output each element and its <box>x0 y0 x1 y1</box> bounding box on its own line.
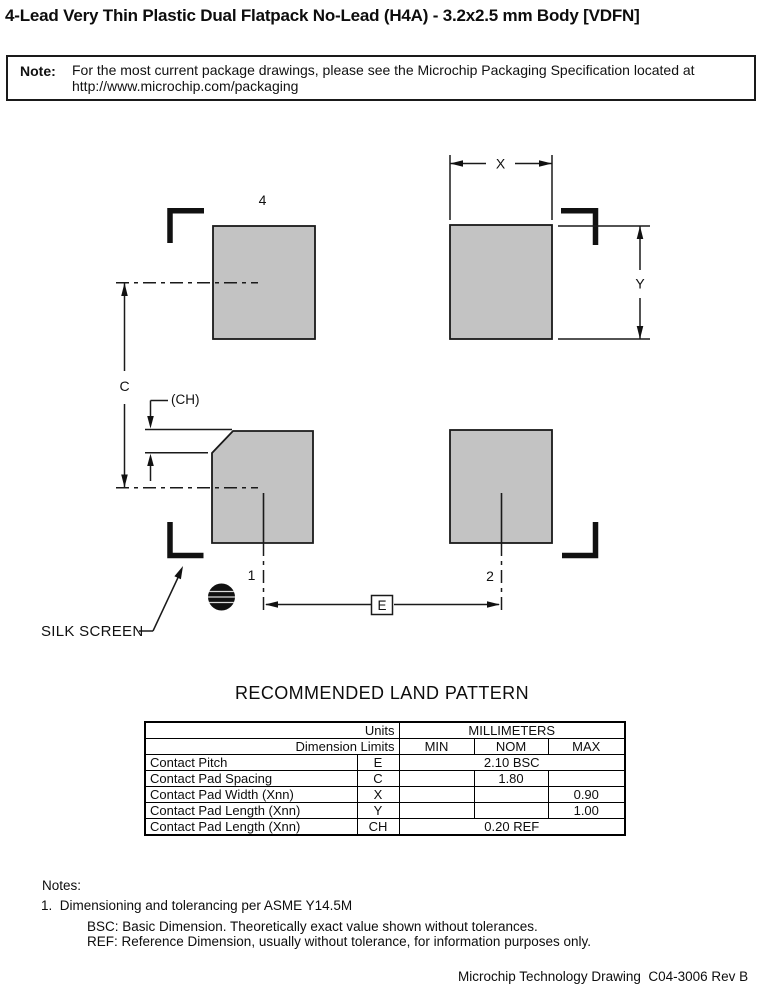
table-row: Contact Pitch E 2.10 BSC <box>145 755 625 771</box>
silk-leader-diag <box>153 577 179 632</box>
row-nom-cell: 1.80 <box>474 771 548 787</box>
note-sub-bsc: BSC: Basic Dimension. Theoretically exac… <box>87 919 538 934</box>
millimeters-cell: MILLIMETERS <box>399 722 625 739</box>
bracket-bottom-right-icon <box>562 522 596 556</box>
dim-y-arrow-bottom-icon <box>637 326 644 339</box>
row-nom-cell <box>474 787 548 803</box>
dim-y-arrow-top-icon <box>637 226 644 239</box>
dim-e-label: E <box>377 598 386 613</box>
bracket-top-right-icon <box>561 211 596 245</box>
dim-x-arrow-left-icon <box>450 160 463 167</box>
row-max-cell: 1.00 <box>548 803 625 819</box>
row-name-cell: Contact Pad Width (Xnn) <box>145 787 357 803</box>
page-title: 4-Lead Very Thin Plastic Dual Flatpack N… <box>5 6 757 26</box>
table-row: Contact Pad Spacing C 1.80 <box>145 771 625 787</box>
land-pattern-heading: RECOMMENDED LAND PATTERN <box>0 683 764 704</box>
table-row-dimension-limits: Dimension Limits MIN NOM MAX <box>145 739 625 755</box>
row-symbol-cell: E <box>357 755 399 771</box>
dim-x-label: X <box>496 156 506 172</box>
dimension-limits-cell: Dimension Limits <box>145 739 399 755</box>
max-header-cell: MAX <box>548 739 625 755</box>
dim-c-arrow-top-icon <box>121 283 128 296</box>
units-cell: Units <box>145 722 399 739</box>
row-min-cell <box>399 803 474 819</box>
silk-screen-callout <box>139 577 179 632</box>
dim-y-label: Y <box>635 276 645 292</box>
row-value-cell: 0.20 REF <box>399 819 625 836</box>
row-symbol-cell: CH <box>357 819 399 836</box>
row-name-cell: Contact Pad Length (Xnn) <box>145 803 357 819</box>
dim-ch-label: (CH) <box>171 392 200 407</box>
silk-screen-label: SILK SCREEN <box>41 623 144 640</box>
note-item-1: 1. Dimensioning and tolerancing per ASME… <box>41 898 352 913</box>
row-name-cell: Contact Pitch <box>145 755 357 771</box>
pad-3-top-right <box>450 225 552 339</box>
row-nom-cell <box>474 803 548 819</box>
table-row: Contact Pad Width (Xnn) X 0.90 <box>145 787 625 803</box>
note-text-line1: For the most current package drawings, p… <box>72 63 744 79</box>
footer-drawing-number: Microchip Technology Drawing C04-3006 Re… <box>458 969 748 984</box>
pin1-dot-icon <box>207 584 236 611</box>
row-min-cell <box>399 787 474 803</box>
document-page: 4-Lead Very Thin Plastic Dual Flatpack N… <box>0 0 764 988</box>
bracket-top-left-icon <box>170 211 204 243</box>
row-min-cell <box>399 771 474 787</box>
dim-ch-arrow-up-icon <box>147 454 154 466</box>
note-sub-ref: REF: Reference Dimension, usually withou… <box>87 934 591 949</box>
dim-ch-arrow-down-icon <box>147 416 154 429</box>
notes-heading: Notes: <box>42 878 81 893</box>
row-symbol-cell: Y <box>357 803 399 819</box>
table-row: Contact Pad Length (Xnn) CH 0.20 REF <box>145 819 625 836</box>
dimension-table: Units MILLIMETERS Dimension Limits MIN N… <box>144 721 626 836</box>
pad-2-number: 2 <box>486 568 494 584</box>
nom-header-cell: NOM <box>474 739 548 755</box>
row-max-cell <box>548 771 625 787</box>
dim-c-label: C <box>119 378 129 394</box>
row-symbol-cell: C <box>357 771 399 787</box>
note-label: Note: <box>20 63 56 79</box>
pad-1-number: 1 <box>248 567 256 583</box>
note-text: For the most current package drawings, p… <box>72 63 744 94</box>
note-text-line2: http://www.microchip.com/packaging <box>72 79 744 95</box>
land-pattern-drawing: X Y C (CH) <box>0 120 764 680</box>
row-name-cell: Contact Pad Spacing <box>145 771 357 787</box>
row-value-cell: 2.10 BSC <box>399 755 625 771</box>
table-row-units: Units MILLIMETERS <box>145 722 625 739</box>
dim-e-arrow-right-icon <box>487 601 500 608</box>
dim-e-arrow-left-icon <box>265 601 278 608</box>
min-header-cell: MIN <box>399 739 474 755</box>
row-name-cell: Contact Pad Length (Xnn) <box>145 819 357 836</box>
note-box: Note: For the most current package drawi… <box>6 55 756 101</box>
bracket-bottom-left-icon <box>170 522 204 556</box>
pad-4-number: 4 <box>259 192 267 208</box>
table-row: Contact Pad Length (Xnn) Y 1.00 <box>145 803 625 819</box>
dim-x-arrow-right-icon <box>539 160 552 167</box>
silk-leader-arrow-icon <box>174 566 183 579</box>
row-max-cell: 0.90 <box>548 787 625 803</box>
row-symbol-cell: X <box>357 787 399 803</box>
dim-c-arrow-bottom-icon <box>121 475 128 488</box>
